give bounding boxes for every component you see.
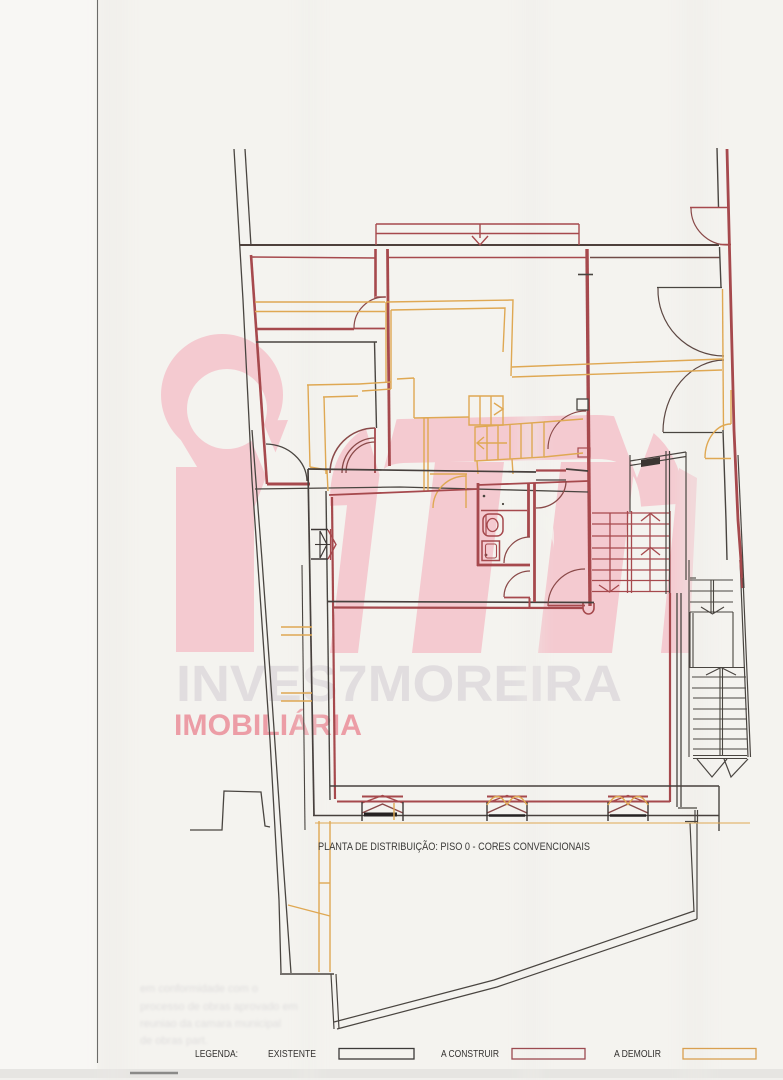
svg-text:A DEMOLIR: A DEMOLIR [614,1049,661,1060]
svg-text:LEGENDA:: LEGENDA: [195,1049,238,1060]
svg-text:de obras part.: de obras part. [140,1035,208,1047]
svg-text:reuniao da camara municipal: reuniao da camara municipal [140,1018,281,1030]
svg-text:INVES7MOREIRA: INVES7MOREIRA [176,655,622,712]
svg-text:EXISTENTE: EXISTENTE [268,1049,316,1060]
svg-text:em conformidade com o: em conformidade com o [140,983,258,995]
svg-text:processo de obras aprovado em: processo de obras aprovado em [140,1001,298,1013]
svg-text:A CONSTRUIR: A CONSTRUIR [441,1049,499,1060]
svg-text:PLANTA DE DISTRIBUIÇÃO: PISO 0: PLANTA DE DISTRIBUIÇÃO: PISO 0 - CORES C… [318,840,590,853]
